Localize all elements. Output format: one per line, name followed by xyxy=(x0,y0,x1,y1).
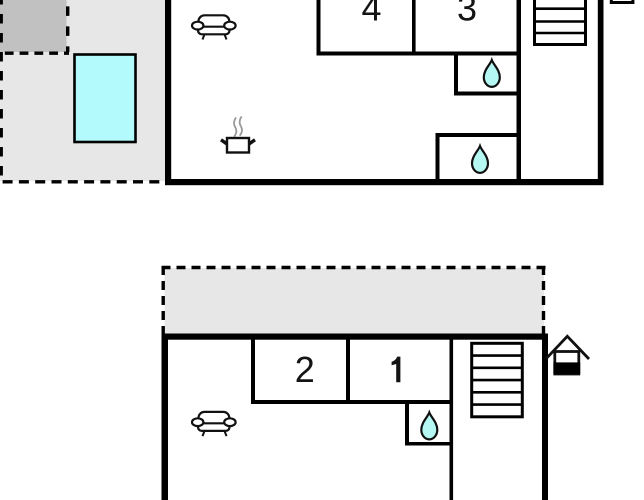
svg-text:2: 2 xyxy=(295,349,315,390)
svg-text:4: 4 xyxy=(361,0,381,28)
svg-text:3: 3 xyxy=(457,0,477,28)
